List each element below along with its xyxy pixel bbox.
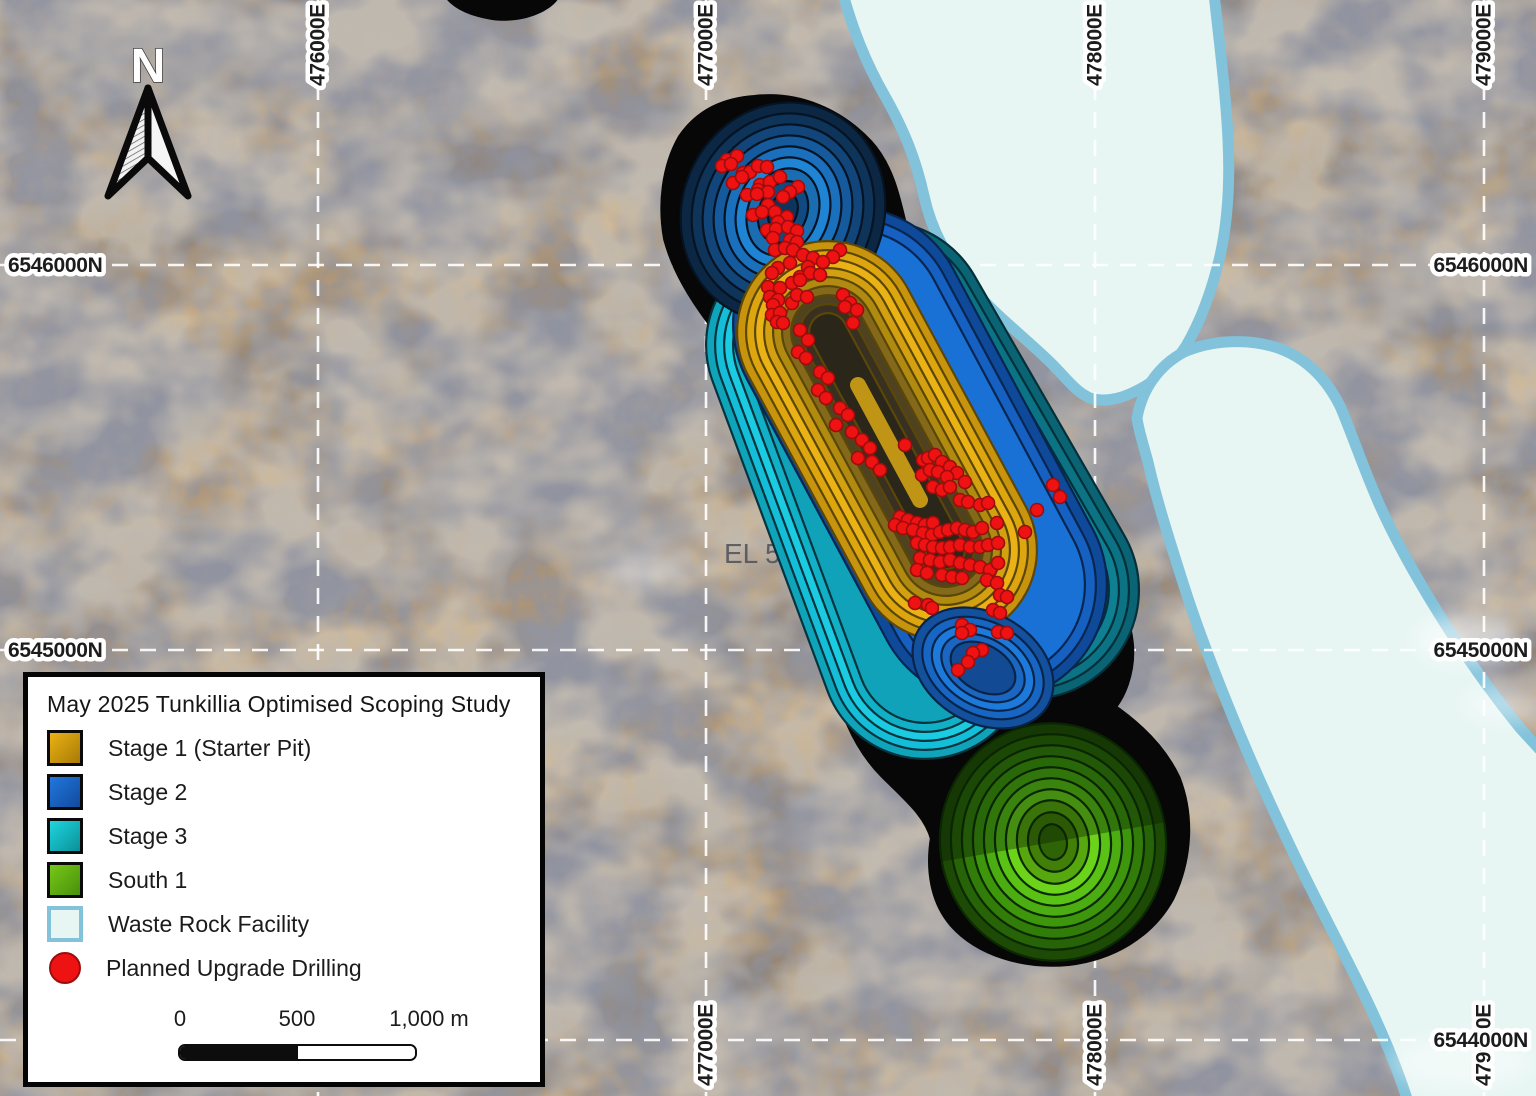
legend-item-drilling: Planned Upgrade Drilling <box>47 946 540 990</box>
legend-item-label: Waste Rock Facility <box>108 911 309 938</box>
north-label: N <box>131 40 166 93</box>
drilling-swatch <box>49 952 81 984</box>
legend-item-south1: South 1 <box>47 858 540 902</box>
map-figure: EL 590 476000E477000E478000E479000E47700… <box>0 0 1536 1096</box>
legend-item-stage2: Stage 2 <box>47 770 540 814</box>
svg-text:476000E: 476000E <box>307 4 330 86</box>
svg-text:6545000N: 6545000N <box>8 639 103 662</box>
legend-item-stage3: Stage 3 <box>47 814 540 858</box>
legend-item-label: South 1 <box>108 867 187 894</box>
scale-bar-filled-half <box>180 1046 298 1059</box>
scale-bar-empty-half <box>298 1046 416 1059</box>
scale-bar-track <box>178 1044 417 1061</box>
legend-item-label: Planned Upgrade Drilling <box>106 955 362 982</box>
scale-tick: 500 <box>279 1006 316 1032</box>
legend-panel: May 2025 Tunkillia Optimised Scoping Stu… <box>23 672 545 1087</box>
waste-rock-swatch <box>47 906 83 942</box>
south1-swatch <box>47 862 83 898</box>
svg-text:6544000N: 6544000N <box>1433 1029 1528 1052</box>
svg-text:477000E: 477000E <box>695 4 718 86</box>
svg-text:479000E: 479000E <box>1473 4 1496 86</box>
legend-title: May 2025 Tunkillia Optimised Scoping Stu… <box>47 691 540 718</box>
legend-item-label: Stage 1 (Starter Pit) <box>108 735 311 762</box>
legend-item-label: Stage 3 <box>108 823 187 850</box>
svg-text:6545000N: 6545000N <box>1433 639 1528 662</box>
legend-item-waste-rock: Waste Rock Facility <box>47 902 540 946</box>
scale-tick: 1,000 m <box>389 1006 469 1032</box>
svg-text:6546000N: 6546000N <box>8 254 103 277</box>
stage3-swatch <box>47 818 83 854</box>
legend-item-stage1: Stage 1 (Starter Pit) <box>47 726 540 770</box>
stage2-swatch <box>47 774 83 810</box>
legend-item-label: Stage 2 <box>108 779 187 806</box>
scale-bar: 0 500 1,000 m <box>47 1006 540 1076</box>
svg-text:478000E: 478000E <box>1084 1004 1107 1086</box>
svg-text:6546000N: 6546000N <box>1433 254 1528 277</box>
svg-text:478000E: 478000E <box>1084 4 1107 86</box>
scale-tick: 0 <box>174 1006 186 1032</box>
svg-text:477000E: 477000E <box>695 1004 718 1086</box>
stage1-swatch <box>47 730 83 766</box>
